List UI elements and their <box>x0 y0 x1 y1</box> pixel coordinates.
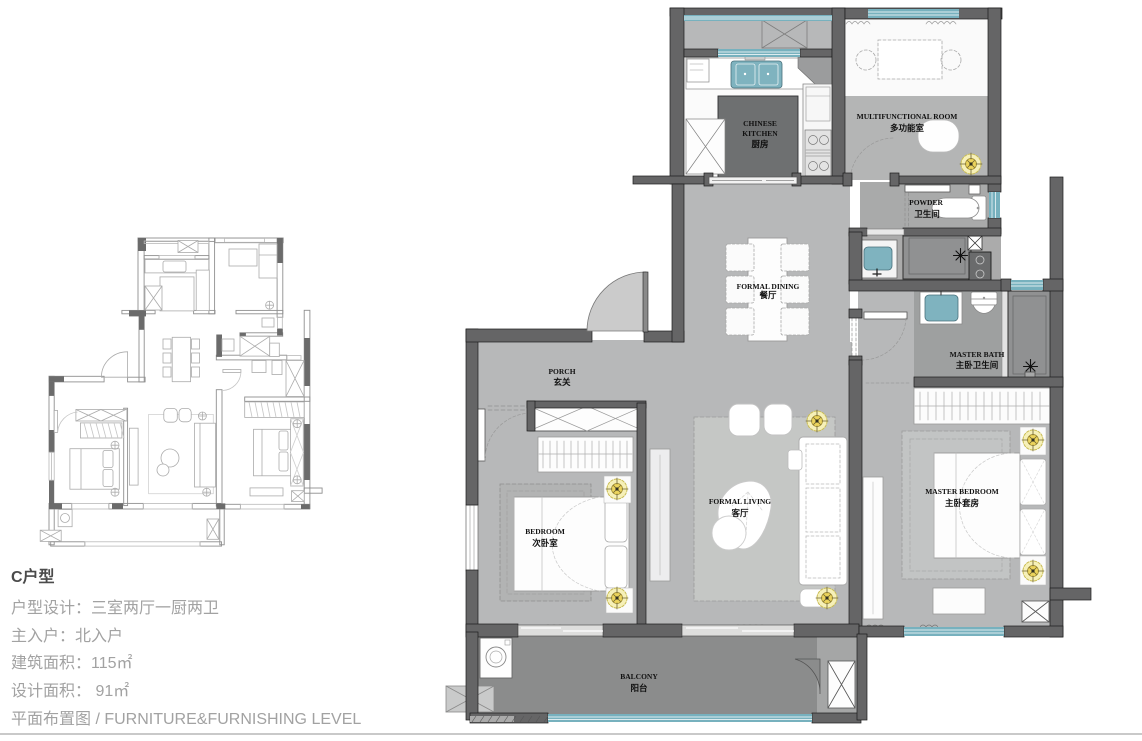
svg-text:MASTER BEDROOM: MASTER BEDROOM <box>925 487 999 496</box>
svg-text:KITCHEN: KITCHEN <box>742 129 778 138</box>
svg-text:玄关: 玄关 <box>553 377 571 387</box>
svg-text:MULTIFUNCTIONAL ROOM: MULTIFUNCTIONAL ROOM <box>857 112 958 121</box>
svg-text:PORCH: PORCH <box>548 367 575 376</box>
svg-text:BALCONY: BALCONY <box>620 672 658 681</box>
svg-text:POWDER: POWDER <box>909 198 943 207</box>
svg-text:主卧卫生间: 主卧卫生间 <box>956 360 999 370</box>
svg-text:阳台: 阳台 <box>630 683 648 693</box>
svg-text:多功能室: 多功能室 <box>890 123 925 133</box>
svg-text:厨房: 厨房 <box>751 139 768 149</box>
svg-text:FORMAL LIVING: FORMAL LIVING <box>709 497 771 506</box>
svg-text:MASTER BATH: MASTER BATH <box>950 350 1005 359</box>
svg-text:客厅: 客厅 <box>730 508 749 518</box>
svg-text:次卧室: 次卧室 <box>532 538 558 548</box>
svg-text:CHINESE: CHINESE <box>743 119 777 128</box>
svg-text:卫生间: 卫生间 <box>914 209 940 219</box>
svg-text:餐厅: 餐厅 <box>758 290 777 300</box>
svg-text:主卧套房: 主卧套房 <box>945 498 979 508</box>
svg-text:BEDROOM: BEDROOM <box>525 527 565 536</box>
